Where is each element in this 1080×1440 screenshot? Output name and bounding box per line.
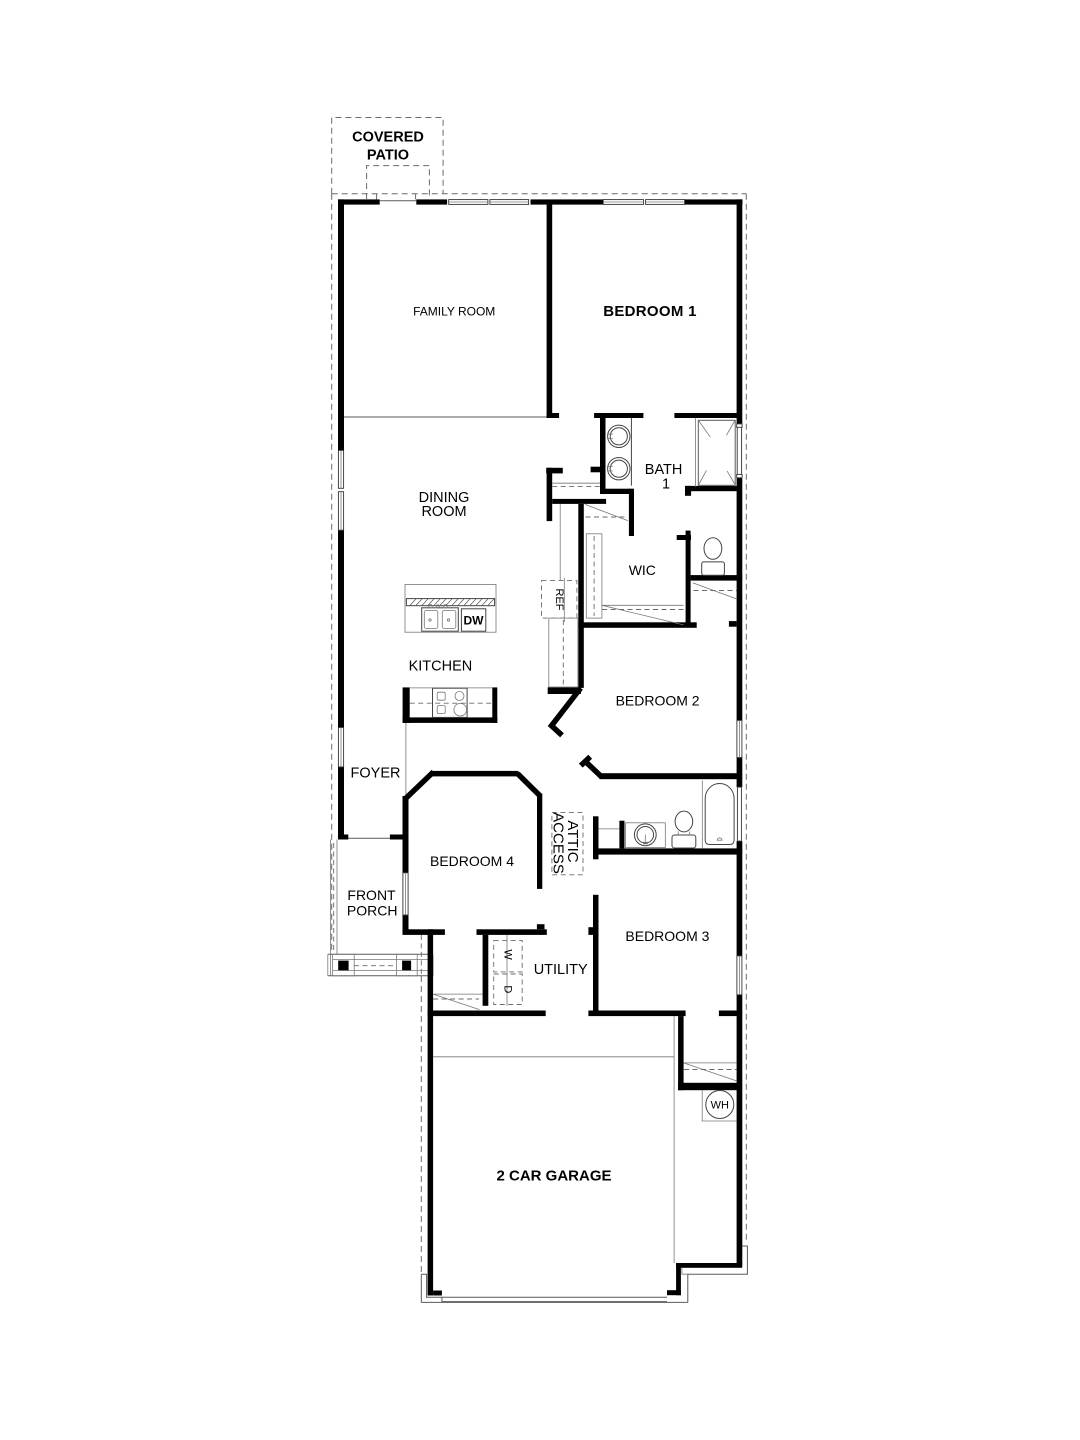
svg-text:REF: REF	[553, 589, 565, 611]
svg-text:BEDROOM 2: BEDROOM 2	[616, 693, 700, 709]
svg-text:UTILITY: UTILITY	[534, 962, 588, 978]
svg-text:KITCHEN: KITCHEN	[409, 659, 473, 675]
svg-text:FOYER: FOYER	[351, 765, 401, 781]
svg-text:COVERED: COVERED	[352, 130, 424, 146]
svg-text:FRONT: FRONT	[347, 887, 396, 903]
svg-text:FAMILY ROOM: FAMILY ROOM	[413, 305, 495, 319]
svg-text:PATIO: PATIO	[367, 147, 409, 163]
svg-text:DW: DW	[464, 614, 485, 628]
svg-text:ACCESS: ACCESS	[550, 812, 567, 874]
svg-text:D: D	[502, 985, 514, 993]
svg-text:PORCH: PORCH	[347, 903, 398, 919]
svg-text:2 CAR GARAGE: 2 CAR GARAGE	[496, 1168, 611, 1185]
svg-text:BEDROOM 4: BEDROOM 4	[430, 853, 514, 869]
svg-text:BEDROOM 3: BEDROOM 3	[625, 928, 709, 944]
svg-text:W: W	[502, 949, 514, 960]
svg-text:WH: WH	[711, 1100, 729, 1112]
svg-text:1: 1	[662, 476, 670, 492]
svg-text:WIC: WIC	[629, 562, 656, 578]
svg-text:ROOM: ROOM	[421, 504, 466, 520]
svg-text:BEDROOM 1: BEDROOM 1	[603, 303, 697, 320]
